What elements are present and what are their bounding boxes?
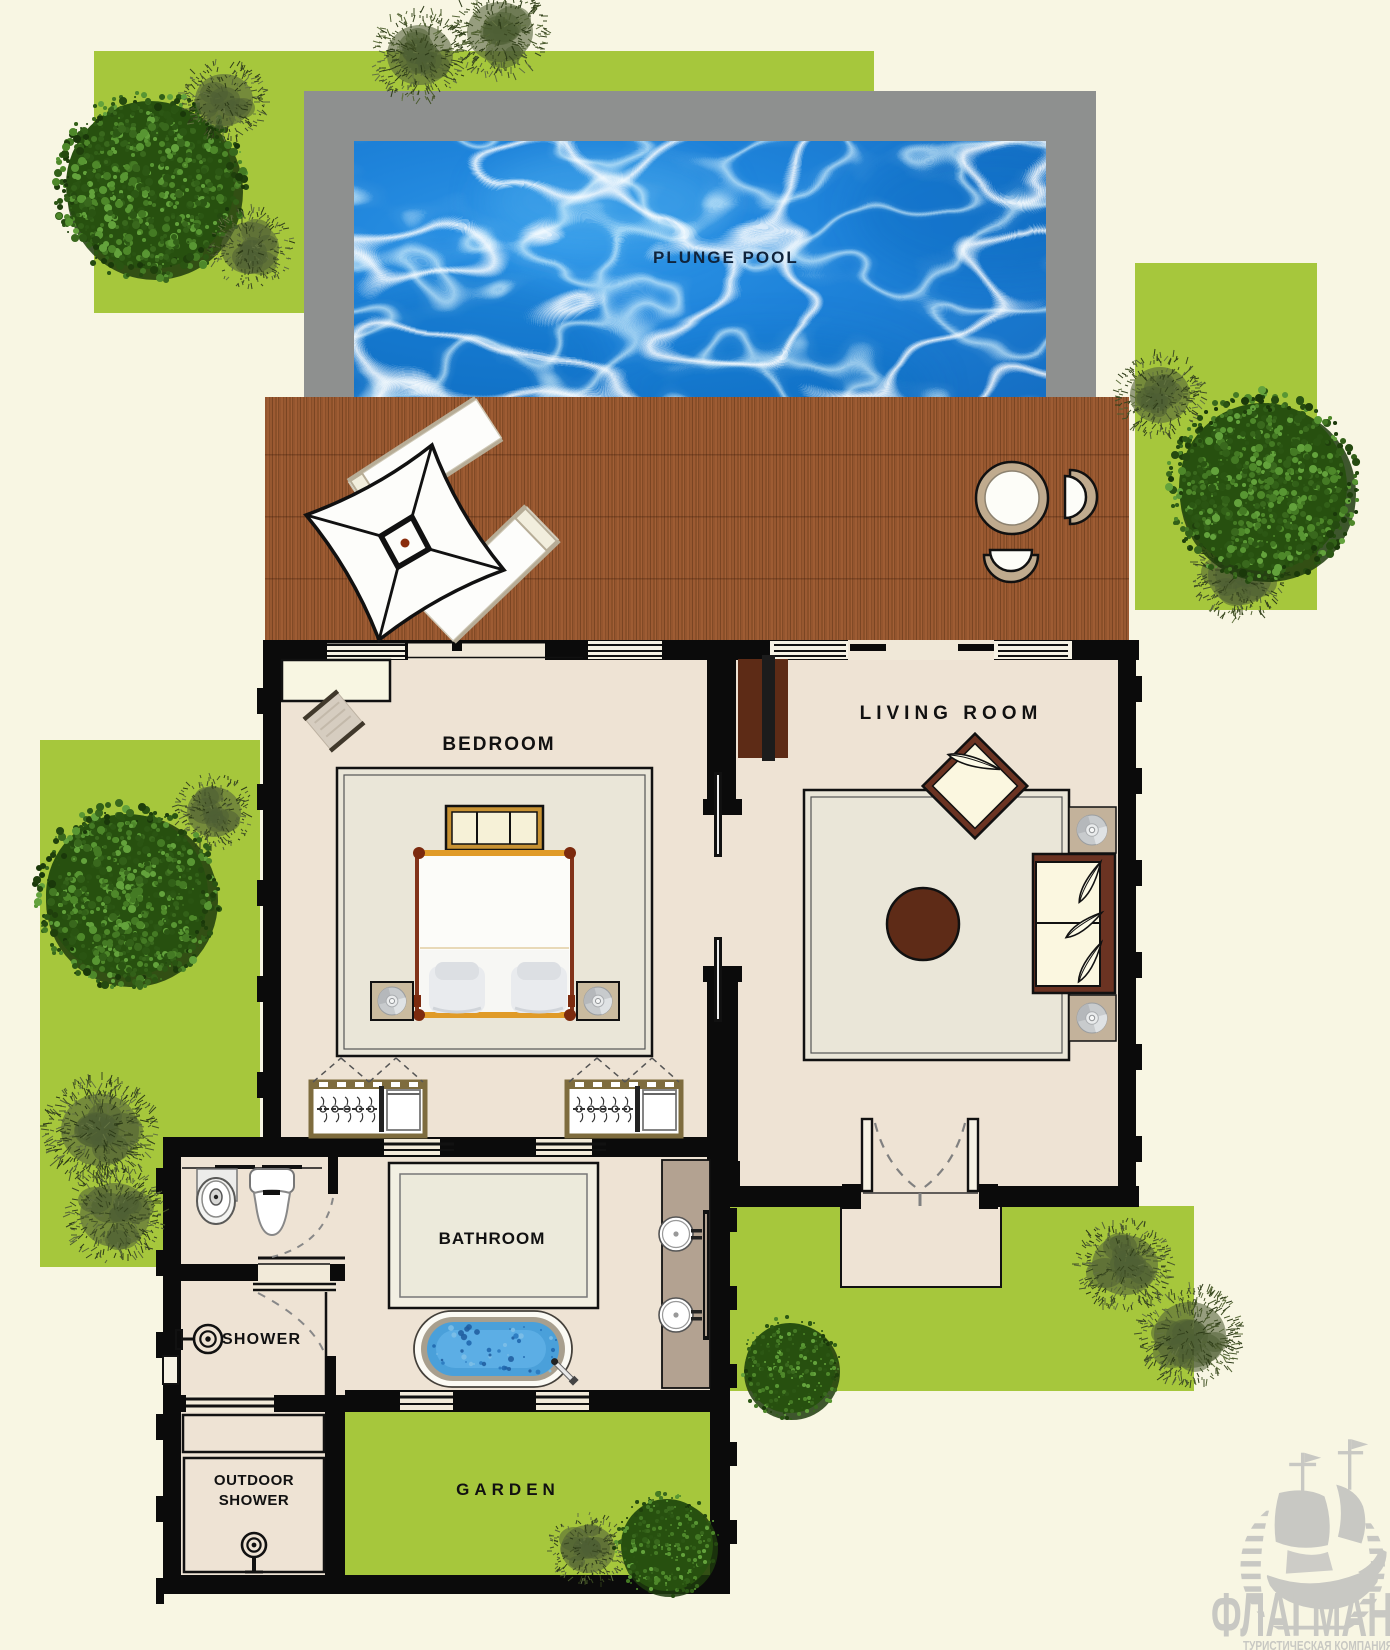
svg-text:ТУРИСТИЧЕСКАЯ КОМПАНИЯ: ТУРИСТИЧЕСКАЯ КОМПАНИЯ bbox=[1243, 1638, 1390, 1650]
